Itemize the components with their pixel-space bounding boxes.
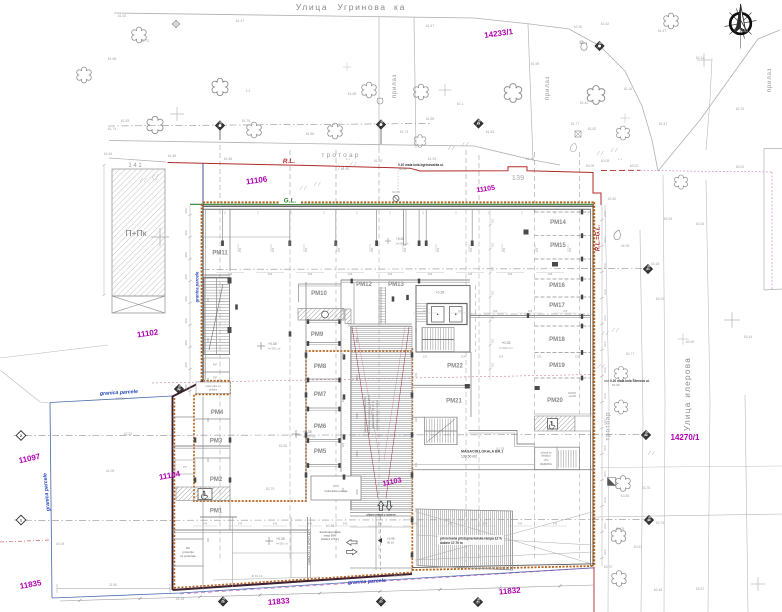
svg-text:ка: ка — [394, 2, 406, 12]
svg-text:2: 2 — [645, 434, 647, 438]
svg-text:63.88: 63.88 — [326, 524, 335, 528]
svg-text:61.70: 61.70 — [141, 39, 150, 43]
svg-text:mala vrata za: mala vrata za — [205, 384, 221, 388]
svg-text:61.82: 61.82 — [588, 127, 597, 131]
svg-text:280: 280 — [206, 497, 210, 502]
svg-text:dužina rampe = 21.37 m: dužina rampe = 21.37 m — [371, 401, 375, 429]
svg-text:250: 250 — [491, 242, 495, 247]
svg-text:546: 546 — [553, 522, 558, 526]
svg-text:63.70: 63.70 — [604, 565, 613, 569]
svg-text:PM21: PM21 — [446, 399, 462, 405]
svg-text:280: 280 — [184, 208, 188, 213]
svg-text:4: 4 — [477, 601, 479, 605]
svg-text:63.0: 63.0 — [603, 523, 607, 529]
svg-text:62.76: 62.76 — [736, 107, 745, 111]
svg-text:PM3: PM3 — [210, 439, 223, 445]
svg-text:63.48: 63.48 — [654, 588, 663, 592]
svg-text:528: 528 — [499, 355, 504, 359]
svg-text:17%: 17% — [543, 459, 549, 462]
svg-text:505: 505 — [341, 442, 345, 447]
svg-text:61.90: 61.90 — [341, 167, 350, 171]
svg-text:PM2: PM2 — [210, 477, 223, 483]
svg-text:63.57: 63.57 — [634, 545, 643, 549]
svg-text:250: 250 — [535, 247, 539, 252]
svg-text:PP: PP — [183, 465, 187, 469]
svg-text:62.42: 62.42 — [580, 101, 589, 105]
svg-text:61.83: 61.83 — [121, 119, 130, 123]
svg-text:h=350 cm: h=350 cm — [268, 347, 281, 351]
svg-text:65.73: 65.73 — [394, 574, 403, 578]
svg-text:REZERVE: REZERVE — [540, 463, 552, 466]
svg-text:PM4: PM4 — [211, 410, 224, 416]
svg-text:62.79: 62.79 — [266, 487, 275, 491]
svg-text:62.80: 62.80 — [608, 197, 617, 201]
svg-text:546: 546 — [343, 522, 348, 526]
svg-text:43.76: 43.76 — [642, 486, 651, 490]
svg-text:PM18: PM18 — [549, 337, 565, 343]
svg-text:PP6: PP6 — [333, 484, 339, 488]
svg-text:62.05: 62.05 — [392, 190, 400, 194]
svg-text:7: 7 — [178, 388, 180, 392]
svg-text:250: 250 — [469, 247, 473, 252]
svg-text:PM6: PM6 — [314, 424, 327, 430]
svg-text:61.74: 61.74 — [400, 130, 409, 134]
svg-text:280: 280 — [184, 274, 188, 279]
svg-text:528: 528 — [537, 355, 542, 359]
svg-text:61.59: 61.59 — [531, 62, 540, 66]
svg-text:1 4 1: 1 4 1 — [128, 163, 142, 169]
svg-text:14270/1: 14270/1 — [671, 433, 700, 442]
svg-text:63.0: 63.0 — [603, 315, 607, 321]
svg-text:61.89: 61.89 — [426, 117, 435, 121]
svg-text:+2.00: +2.00 — [568, 394, 576, 398]
svg-text:280: 280 — [206, 537, 210, 542]
svg-text:тротоар: тротоар — [321, 152, 360, 159]
svg-text:2069: 2069 — [356, 337, 359, 343]
svg-text:+0.35: +0.35 — [276, 537, 285, 541]
svg-text:2069: 2069 — [356, 413, 359, 419]
svg-text:61.90: 61.90 — [526, 157, 535, 161]
svg-text:G.L.: G.L. — [284, 198, 297, 205]
svg-text:280: 280 — [206, 337, 210, 342]
svg-text:63.39: 63.39 — [664, 217, 673, 221]
svg-text:PM14: PM14 — [550, 220, 566, 226]
svg-text:63.08: 63.08 — [612, 383, 620, 387]
svg-text:62.88: 62.88 — [116, 397, 125, 401]
svg-text:63.0: 63.0 — [603, 393, 607, 399]
svg-text:280: 280 — [184, 296, 188, 301]
svg-text:546: 546 — [203, 522, 208, 526]
svg-text:PM17: PM17 — [549, 303, 565, 309]
svg-text:63.05: 63.05 — [601, 159, 610, 163]
svg-text:PM7: PM7 — [314, 392, 327, 398]
svg-text:250: 250 — [370, 247, 374, 252]
svg-text:61.47: 61.47 — [236, 19, 245, 23]
svg-text:250: 250 — [491, 266, 495, 271]
svg-text:505: 505 — [341, 397, 345, 402]
svg-text:61.47: 61.47 — [426, 24, 435, 28]
svg-text:61.86: 61.86 — [224, 157, 233, 161]
svg-text:+0.35: +0.35 — [268, 342, 277, 346]
svg-text:528: 528 — [423, 355, 428, 359]
svg-text:160: 160 — [414, 327, 418, 332]
svg-text:63.0: 63.0 — [603, 237, 607, 243]
svg-text:43.78: 43.78 — [496, 447, 505, 451]
svg-text:250: 250 — [491, 338, 495, 343]
svg-text:h=300 cm: h=300 cm — [499, 346, 513, 350]
svg-text:44.05: 44.05 — [621, 244, 630, 248]
svg-text:280: 280 — [184, 340, 188, 345]
svg-text:62.30: 62.30 — [574, 25, 583, 29]
svg-text:280: 280 — [184, 318, 188, 323]
svg-text:528: 528 — [575, 355, 580, 359]
svg-text:280: 280 — [206, 377, 210, 382]
svg-text:60.08: 60.08 — [399, 167, 407, 171]
svg-text:63.0: 63.0 — [603, 549, 607, 555]
svg-text:546: 546 — [483, 522, 488, 526]
svg-text:250: 250 — [271, 247, 275, 252]
svg-text:63.57: 63.57 — [696, 587, 705, 591]
svg-text:62.47: 62.47 — [659, 122, 668, 126]
svg-text:505: 505 — [341, 487, 345, 492]
svg-text:250: 250 — [491, 314, 495, 319]
svg-text:1.1: 1.1 — [346, 157, 351, 161]
svg-text:PM11: PM11 — [212, 251, 228, 257]
svg-text:63.02: 63.02 — [630, 164, 639, 168]
svg-text:546: 546 — [518, 522, 523, 526]
svg-text:63.04: 63.04 — [696, 222, 705, 226]
svg-text:6: 6 — [222, 600, 224, 604]
svg-text:398: 398 — [528, 309, 533, 313]
svg-text:Φ 10.10: Φ 10.10 — [252, 574, 263, 578]
svg-text:PM20: PM20 — [547, 398, 563, 404]
svg-text:тротоар: тротоар — [606, 412, 612, 441]
svg-text:505: 505 — [341, 307, 345, 312]
svg-text:savladavanje pregleda L=21.35: savladavanje pregleda L=21.35 m — [367, 395, 371, 434]
svg-text:1: 1 — [648, 519, 650, 523]
svg-text:PM15: PM15 — [550, 243, 566, 249]
svg-text:61.93: 61.93 — [428, 157, 437, 161]
svg-text:398: 398 — [563, 309, 568, 313]
svg-text:250: 250 — [502, 247, 506, 252]
svg-text:1.1: 1.1 — [618, 157, 623, 161]
svg-text:Угринова: Угринова — [337, 2, 386, 12]
svg-text:280: 280 — [184, 362, 188, 367]
svg-text:250: 250 — [403, 247, 407, 252]
svg-text:PP: PP — [213, 363, 217, 367]
svg-text:61.84: 61.84 — [104, 152, 113, 156]
svg-text:61.52: 61.52 — [118, 14, 127, 18]
svg-text:63.85: 63.85 — [279, 444, 288, 448]
svg-text:61.77: 61.77 — [571, 122, 580, 126]
svg-text:+0.25: +0.25 — [396, 237, 404, 241]
svg-text:pešake: pešake — [209, 388, 218, 392]
svg-text:Улица: Улица — [296, 2, 328, 12]
svg-text:h=350 cm: h=350 cm — [276, 542, 289, 546]
svg-text:čistačicu: čistačicu — [541, 455, 551, 458]
svg-text:Улица илерова: Улица илерова — [683, 357, 692, 431]
svg-text:505: 505 — [341, 352, 345, 357]
svg-text:546: 546 — [378, 522, 383, 526]
svg-text:44.05: 44.05 — [106, 469, 115, 473]
svg-text:privremena pristupna kolska ra: privremena pristupna kolska rampa 12 % — [440, 537, 502, 541]
svg-text:61.88: 61.88 — [168, 154, 177, 158]
svg-text:63.0: 63.0 — [603, 263, 607, 269]
svg-text:61.74: 61.74 — [108, 127, 117, 131]
svg-text:63.75: 63.75 — [656, 521, 665, 525]
svg-text:139.50 m2: 139.50 m2 — [461, 455, 477, 459]
svg-text:+0.35: +0.35 — [303, 430, 312, 434]
svg-text:280: 280 — [206, 297, 210, 302]
svg-text:160: 160 — [414, 372, 418, 377]
svg-text:62.16: 62.16 — [624, 87, 633, 91]
svg-text:PM12: PM12 — [356, 282, 372, 288]
svg-text:250: 250 — [436, 247, 440, 252]
svg-text:63.02: 63.02 — [736, 165, 745, 169]
svg-text:250: 250 — [568, 247, 572, 252]
svg-text:546: 546 — [413, 522, 418, 526]
svg-text:546: 546 — [273, 522, 278, 526]
svg-text:250: 250 — [238, 247, 242, 252]
svg-text:528: 528 — [461, 355, 466, 359]
svg-text:61.58: 61.58 — [108, 57, 117, 61]
svg-text:160: 160 — [414, 507, 418, 512]
svg-text:2069: 2069 — [356, 489, 359, 495]
svg-text:savladana visina = 3.20 m: savladana visina = 3.20 m — [375, 400, 379, 430]
svg-text:280: 280 — [206, 417, 210, 422]
svg-text:(sa/bez 2.5 m): (sa/bez 2.5 m) — [321, 537, 339, 541]
svg-text:63.0: 63.0 — [603, 211, 607, 217]
svg-text:5: 5 — [380, 600, 382, 604]
svg-text:61.80: 61.80 — [306, 132, 315, 136]
svg-text:160: 160 — [414, 417, 418, 422]
svg-text:R.L.: R.L. — [283, 158, 296, 165]
svg-text:4: 4 — [478, 122, 480, 126]
svg-text:R.L.=G.L.: R.L.=G.L. — [596, 224, 602, 251]
svg-text:прилаз: прилаз — [767, 68, 773, 92]
svg-text:2069: 2069 — [356, 451, 359, 457]
svg-text:250: 250 — [491, 290, 495, 295]
svg-text:61.83: 61.83 — [486, 130, 495, 134]
svg-text:63.0: 63.0 — [603, 367, 607, 373]
svg-text:21.90: 21.90 — [109, 583, 117, 587]
svg-text:546: 546 — [238, 522, 243, 526]
svg-text:63.0: 63.0 — [603, 445, 607, 451]
svg-text:62.14: 62.14 — [696, 56, 705, 60]
svg-text:+0.35: +0.35 — [436, 291, 445, 295]
svg-text:3: 3 — [647, 268, 649, 272]
svg-text:61.62: 61.62 — [601, 22, 610, 26]
svg-text:280: 280 — [184, 252, 188, 257]
svg-text:PM5: PM5 — [314, 449, 327, 455]
svg-text:2069: 2069 — [356, 375, 359, 381]
svg-text:granica parcele: granica parcele — [195, 271, 200, 303]
svg-text:h=280 cm: h=280 cm — [396, 242, 409, 246]
svg-text:398: 398 — [458, 309, 463, 313]
svg-text:прилаз: прилаз — [545, 76, 551, 100]
svg-text:ulazna rampa u suteren: ulazna rampa u suteren — [367, 513, 396, 517]
svg-text:maksimalna kolska rampa 15%: maksimalna kolska rampa 15% — [363, 396, 367, 433]
svg-text:61.47: 61.47 — [658, 29, 667, 33]
svg-text:250: 250 — [304, 247, 308, 252]
svg-text:dužine 17.70 m: dužine 17.70 m — [440, 541, 463, 545]
svg-text:160: 160 — [414, 462, 418, 467]
svg-text:PM9: PM9 — [311, 332, 324, 338]
svg-text:398: 398 — [493, 309, 498, 313]
svg-text:61.93: 61.93 — [374, 159, 383, 163]
svg-text:61.42: 61.42 — [740, 29, 749, 33]
svg-text:63.18: 63.18 — [651, 262, 660, 266]
svg-text:63.09: 63.09 — [686, 340, 695, 344]
svg-text:63.05: 63.05 — [586, 164, 595, 168]
svg-text:44.05: 44.05 — [56, 542, 65, 546]
svg-text:63.85: 63.85 — [621, 494, 630, 498]
svg-text:+0.35: +0.35 — [501, 341, 510, 345]
svg-text:1.1: 1.1 — [246, 89, 251, 93]
svg-text:546: 546 — [308, 522, 313, 526]
svg-text:139: 139 — [512, 173, 525, 182]
svg-text:63.04: 63.04 — [656, 297, 665, 301]
svg-text:PP: PP — [213, 376, 217, 380]
svg-text:61.69: 61.69 — [348, 92, 357, 96]
svg-text:546: 546 — [448, 522, 453, 526]
svg-text:63.0: 63.0 — [603, 341, 607, 347]
svg-text:PM19: PM19 — [549, 363, 565, 369]
svg-text:PM13: PM13 — [388, 282, 404, 288]
svg-text:63.0: 63.0 — [603, 471, 607, 477]
svg-text:64.28: 64.28 — [176, 597, 185, 601]
svg-text:PM22: PM22 — [447, 364, 463, 370]
svg-text:250: 250 — [337, 247, 341, 252]
svg-text:398: 398 — [423, 309, 428, 313]
svg-text:280: 280 — [184, 384, 188, 389]
svg-text:250: 250 — [491, 218, 495, 223]
svg-text:250: 250 — [491, 362, 495, 367]
svg-text:280: 280 — [184, 230, 188, 235]
svg-text:63.77: 63.77 — [626, 352, 635, 356]
svg-text:62.82: 62.82 — [124, 432, 133, 436]
svg-text:PM10: PM10 — [311, 291, 327, 297]
svg-text:PM16: PM16 — [549, 283, 565, 289]
svg-text:П+Пк: П+Пк — [126, 228, 147, 238]
svg-text:280: 280 — [206, 457, 210, 462]
svg-text:прилаз: прилаз — [392, 74, 398, 98]
svg-text:61.76: 61.76 — [242, 119, 251, 123]
svg-text:63.44: 63.44 — [744, 335, 753, 339]
svg-text:90.10: 90.10 — [387, 541, 394, 545]
svg-text:61.1: 61.1 — [457, 102, 464, 106]
svg-text:PM8: PM8 — [314, 364, 327, 370]
svg-text:1.1: 1.1 — [153, 177, 158, 181]
svg-text:za upravnike: za upravnike — [180, 554, 196, 558]
svg-text:63.05: 63.05 — [616, 527, 625, 531]
svg-text:63.0: 63.0 — [603, 497, 607, 503]
svg-text:PM1: PM1 — [210, 509, 223, 515]
svg-text:63.0: 63.0 — [603, 289, 607, 295]
